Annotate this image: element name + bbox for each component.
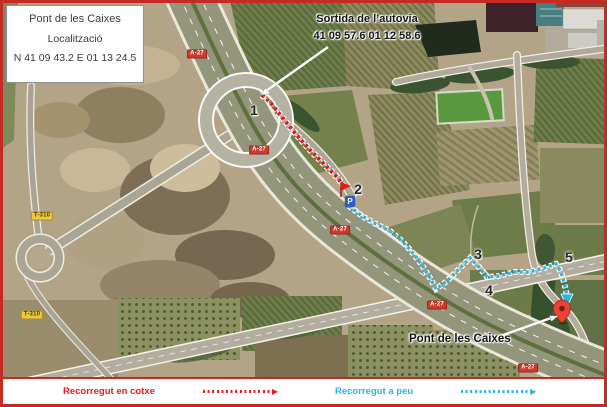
legend-walk-route: Recorregut a peu ▶ (278, 386, 536, 397)
waypoint-3: 3 (474, 246, 482, 262)
road-badge-t310: T-310 (21, 311, 43, 320)
waypoint-2: 2 (354, 181, 362, 197)
exit-label-coordinates: 41 09 57.6 01 12 58.6 (291, 28, 443, 45)
location-info-box: Pont de les Caixes Localització N 41 09 … (6, 5, 144, 83)
info-title: Pont de les Caixes (9, 13, 141, 26)
road-badge-a27: A-27 (330, 226, 350, 235)
road-badge-t310: T-310 (31, 212, 53, 221)
exit-label-title: Sortida de l’autovia (291, 11, 443, 28)
legend-car-dotted-line (203, 390, 271, 393)
legend-walk-label: Recorregut a peu (335, 386, 413, 397)
waypoint-4: 4 (485, 282, 493, 298)
legend-bar: Recorregut en cotxe ▶ Recorregut a peu ▶ (3, 377, 604, 404)
road-badge-a27: A-27 (187, 50, 207, 59)
info-coordinates: N 41 09 43.2 E 01 13 24.5 (9, 52, 141, 64)
motorway-exit-label: Sortida de l’autovia 41 09 57.6 01 12 58… (291, 11, 443, 44)
road-badge-a27: A-27 (249, 146, 269, 155)
map-figure: Pont de les Caixes Localització N 41 09 … (0, 0, 607, 407)
legend-walk-arrow-icon: ▶ (530, 388, 536, 396)
legend-car-route: Recorregut en cotxe ▶ (3, 386, 278, 397)
waypoint-1: 1 (250, 102, 258, 118)
road-badge-a27: A-27 (518, 364, 538, 373)
destination-label: Pont de les Caixes (409, 333, 511, 345)
waypoint-5: 5 (565, 249, 573, 265)
info-subtitle: Localització (9, 33, 141, 45)
legend-car-label: Recorregut en cotxe (63, 386, 155, 397)
road-badge-a27: A-27 (427, 301, 447, 310)
parking-icon: P (345, 196, 355, 207)
legend-walk-dotted-line (461, 390, 529, 393)
